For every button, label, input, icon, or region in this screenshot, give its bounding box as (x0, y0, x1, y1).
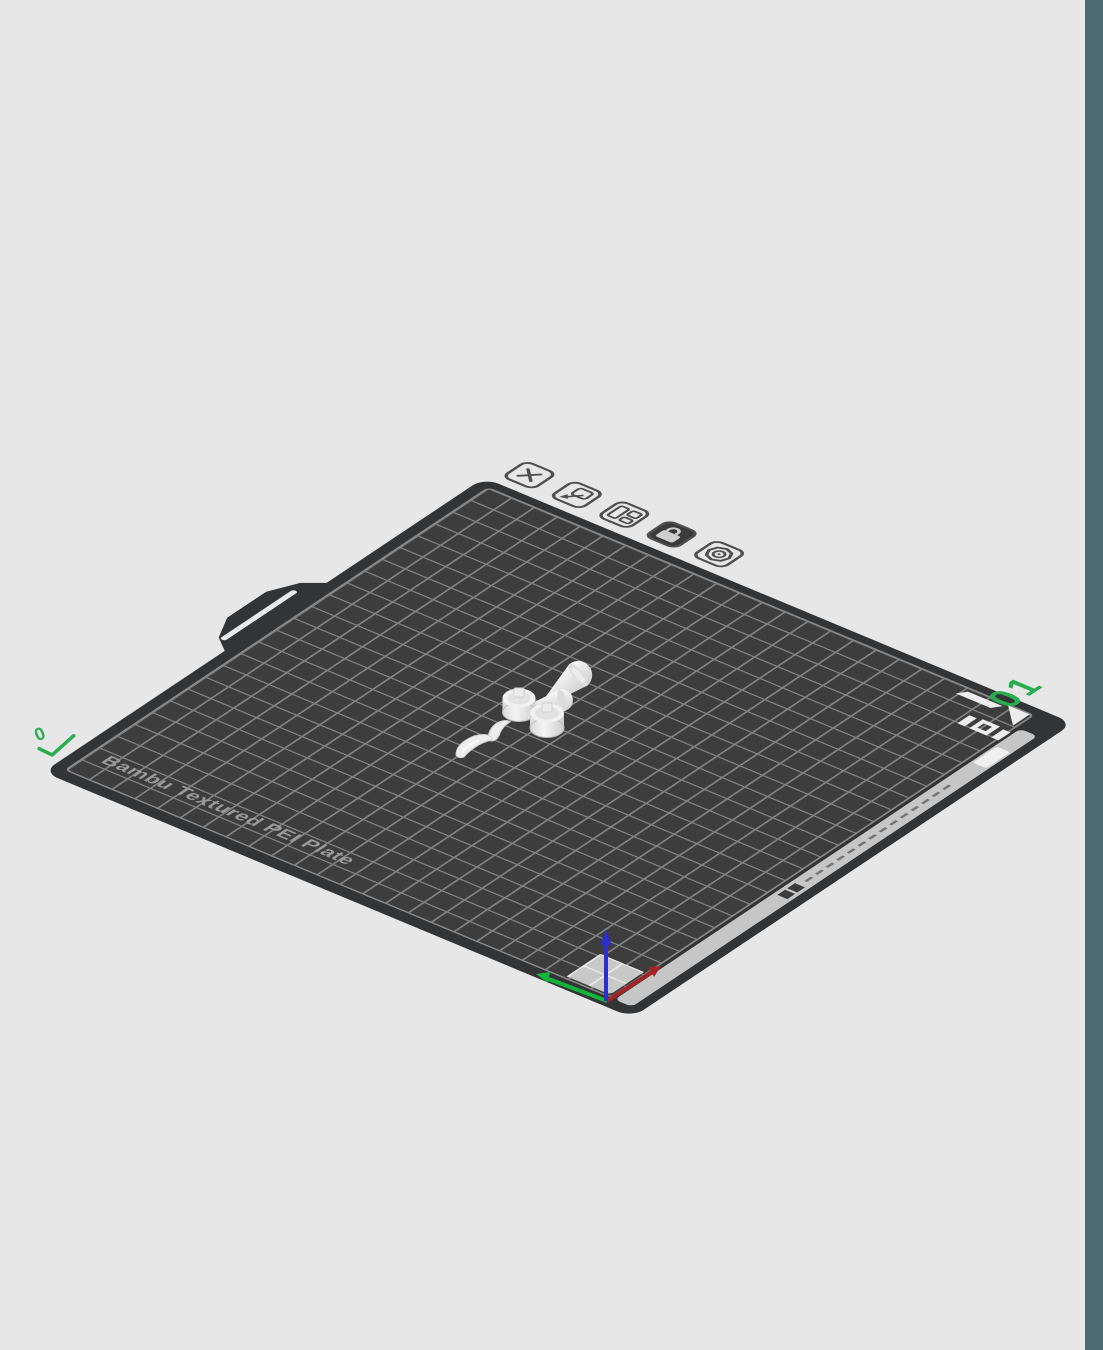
x-axis-arrow (607, 966, 661, 1001)
orient-plate-button[interactable] (548, 480, 606, 511)
gear-icon (695, 541, 744, 567)
model-knob-right[interactable] (530, 703, 564, 738)
right-panel-edge (1085, 0, 1103, 1350)
plate-corner-mark: 0 (33, 724, 83, 764)
z-axis-arrow (600, 930, 612, 1001)
model-claw-large[interactable] (456, 735, 492, 758)
arrange-plate-button[interactable] (595, 499, 653, 530)
x-icon (505, 462, 554, 488)
lock-plate-button[interactable] (643, 519, 701, 550)
orient-arrow-icon (553, 482, 602, 508)
check-icon (36, 731, 81, 761)
delete-plate-button[interactable] (500, 460, 558, 491)
arrange-grid-icon (600, 502, 649, 528)
lock-icon (647, 522, 696, 548)
qr-code-mark (777, 890, 795, 899)
origin-axes-indicator (500, 915, 700, 1020)
model-group[interactable] (440, 630, 625, 770)
plate-settings-button[interactable] (690, 539, 748, 570)
y-axis-arrow (536, 972, 607, 1001)
viewport-3d[interactable]: Bambu Textured PEI Plate 01 (0, 0, 1103, 1350)
